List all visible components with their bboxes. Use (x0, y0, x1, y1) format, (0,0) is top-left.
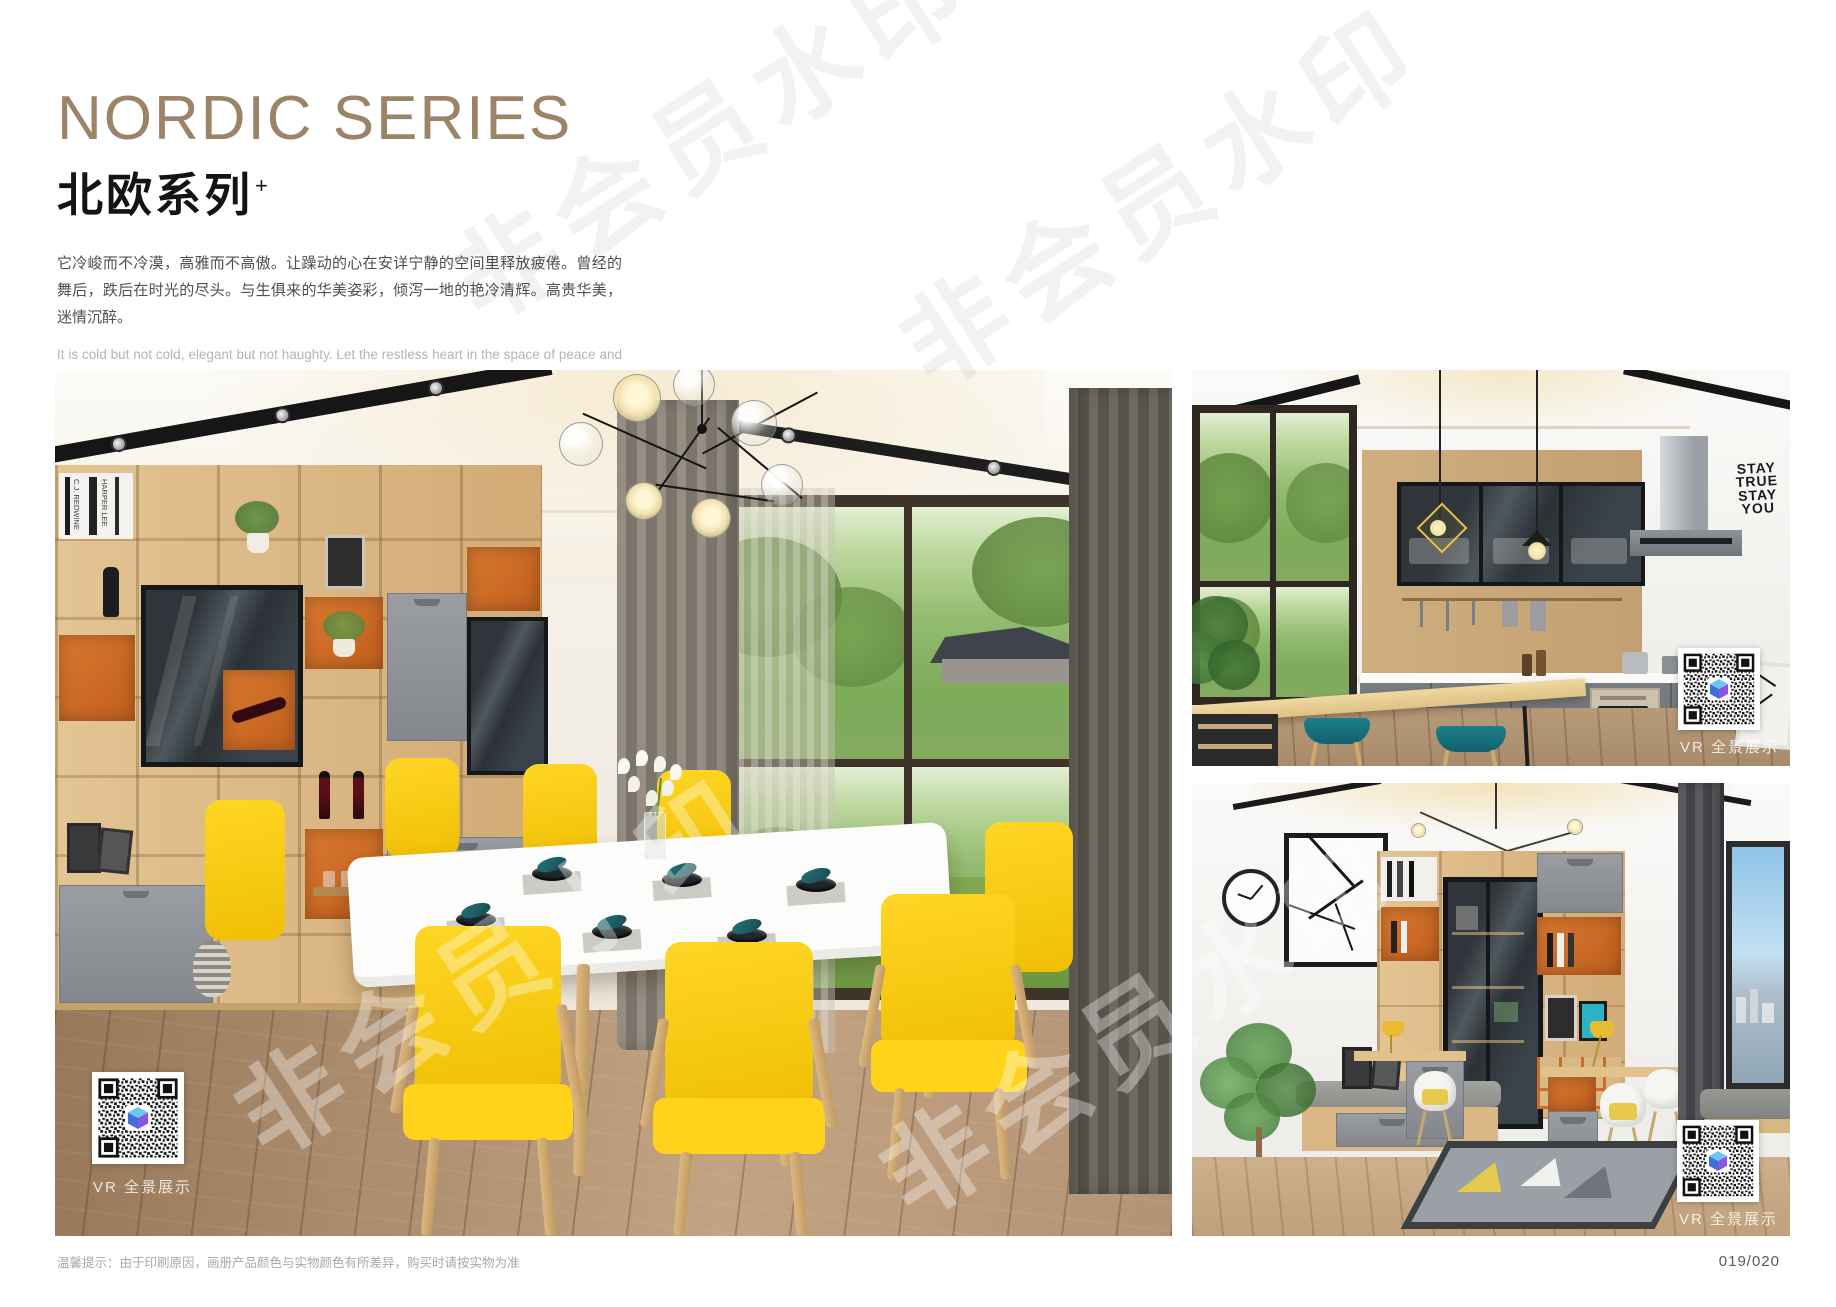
plant-cell (223, 495, 293, 559)
book-row (1381, 857, 1437, 901)
qr-code (92, 1072, 184, 1164)
print-disclaimer: 温馨提示：由于印刷原因，画册产品颜色与实物颜色有所差异，购买时请按实物为准 (57, 1252, 520, 1271)
geometric-rug (1401, 1141, 1702, 1229)
bar-stool-teal (1436, 726, 1506, 766)
study-room-photo: VR 全景展示 (1192, 783, 1790, 1236)
gray-upper-cabinet (1537, 853, 1623, 913)
white-desk-chair (1414, 1071, 1458, 1149)
orange-cell (1381, 907, 1439, 961)
wood-back-panel (1362, 450, 1642, 678)
watermark-text: 非会员水印 (867, 0, 1449, 417)
bulb (1528, 542, 1546, 560)
orange-cell-plant (305, 597, 383, 669)
window-right (1726, 841, 1790, 1089)
wall-clock (1222, 869, 1280, 927)
dining-room-photo: C.J. REDWINE HARPER LEE (55, 370, 1172, 1236)
potted-plant (1192, 596, 1262, 726)
book-spine-title: C.J. REDWINE (72, 479, 81, 530)
vr-panorama-label: VR 全景展示 (93, 1176, 192, 1197)
gray-cabinet-door (387, 593, 467, 741)
page-subtitle: 北欧系列+ (57, 172, 622, 218)
kettle (1662, 656, 1678, 674)
orange-cell-books (1537, 917, 1621, 975)
photo-frame-cell (59, 805, 135, 877)
dining-chair-yellow-front (403, 926, 573, 1236)
description-chinese: 它冷峻而不冷漠，高雅而不高傲。让躁动的心在安详宁静的空间里释放疲倦。曾经的舞后，… (57, 250, 622, 331)
flower-vase (610, 750, 700, 860)
striped-vase-cell (141, 933, 291, 1003)
desk-left-top (1354, 1051, 1466, 1061)
dining-chair-yellow (385, 758, 459, 858)
pendant-cord (1536, 370, 1538, 538)
house-roof (930, 627, 1080, 663)
house-wall (942, 659, 1072, 683)
window-glass-city (1732, 847, 1784, 1083)
lamp-arm (1390, 1035, 1392, 1053)
cooking-pot (1622, 652, 1648, 674)
place-setting (583, 922, 643, 952)
kitchen-photo: STAY TRUE STAY YOU (1192, 370, 1790, 766)
window-seat-cushion (1700, 1089, 1790, 1119)
orange-cell-wine (223, 670, 295, 750)
curtain-right (1069, 388, 1172, 1194)
subtitle-plus: + (255, 173, 271, 198)
page-number: 019/020 (1640, 1253, 1780, 1270)
place-setting (653, 870, 713, 900)
pendant-cord (1439, 370, 1441, 518)
glass-display-cabinet (467, 617, 548, 775)
range-hood-chimney (1660, 436, 1708, 532)
place-setting (523, 864, 583, 894)
qr-code (1678, 648, 1760, 730)
bottle (1522, 654, 1532, 676)
bottle (1536, 650, 1546, 676)
dining-chair-yellow-front (871, 894, 1027, 1184)
chandelier (555, 370, 815, 580)
range-hood (1630, 530, 1742, 556)
book-spine-title: HARPER LEE (100, 479, 109, 527)
dining-chair-yellow-front (653, 942, 825, 1236)
wall-art-stay-true: STAY TRUE STAY YOU (1726, 460, 1790, 543)
vase-cell (59, 543, 133, 623)
vr-panorama-label: VR 全景展示 (1680, 736, 1779, 757)
place-setting (787, 875, 847, 905)
orange-cell (59, 635, 135, 721)
page-title: NORDIC SERIES (57, 88, 622, 150)
orange-cell (467, 547, 540, 611)
cornice-line (1310, 426, 1690, 429)
desk-lamp-yellow (1590, 1021, 1614, 1038)
catalog-page: NORDIC SERIES 北欧系列+ 它冷峻而不冷漠，高雅而不高傲。让躁动的心… (0, 0, 1836, 1307)
bulb (1430, 520, 1446, 536)
book-cell: C.J. REDWINE HARPER LEE (59, 473, 133, 539)
subtitle-cn: 北欧系列 (57, 169, 253, 221)
frame-shelf (1537, 981, 1621, 1051)
frame-cell (305, 525, 381, 591)
vr-panorama-label: VR 全景展示 (1679, 1208, 1778, 1229)
qr-code (1677, 1120, 1759, 1202)
header: NORDIC SERIES 北欧系列+ 它冷峻而不冷漠，高雅而不高傲。让躁动的心… (57, 88, 622, 414)
dining-chair-yellow (205, 800, 285, 940)
abstract-line-art (1284, 833, 1388, 967)
bar-stool-teal (1304, 718, 1370, 766)
